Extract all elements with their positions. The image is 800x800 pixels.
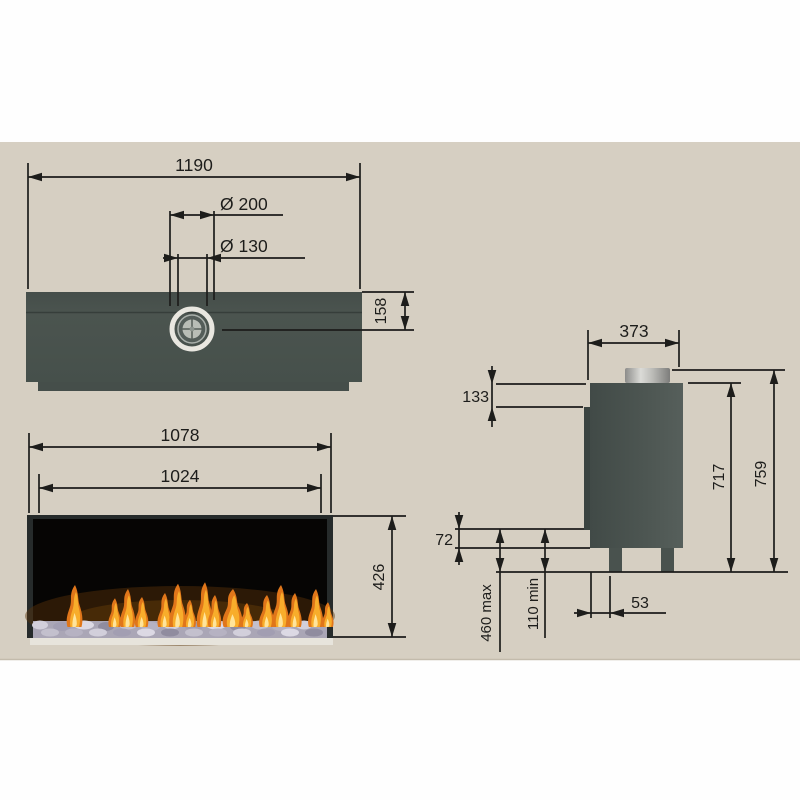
pebble xyxy=(161,629,179,637)
top-view-pedestal xyxy=(38,382,349,391)
dim-label-flue-outer: Ø 200 xyxy=(220,194,268,214)
pebble xyxy=(257,629,275,637)
dim-label-clearance-min: 110 min xyxy=(525,578,542,630)
pebble xyxy=(89,629,107,637)
dim-label-front-opening-height: 426 xyxy=(371,564,388,591)
side-view-flue-collar xyxy=(625,368,670,383)
dim-label-top-width: 1190 xyxy=(175,155,213,175)
pebble xyxy=(305,629,323,637)
pebble xyxy=(233,629,251,637)
side-view-front-glass xyxy=(584,407,590,530)
dim-label-front-overall-width: 1078 xyxy=(161,425,200,445)
diagram-canvas: 1190 Ø 200 Ø 130 158 1078 xyxy=(0,0,800,800)
side-view-body xyxy=(590,383,683,548)
pebble xyxy=(32,621,48,630)
flue-collar-top xyxy=(172,309,212,349)
flue-center-dot xyxy=(190,327,195,332)
pebble xyxy=(137,629,155,637)
fireplace-dimension-drawing: 1190 Ø 200 Ø 130 158 1078 xyxy=(0,0,800,800)
dim-label-leg-inset: 53 xyxy=(631,595,649,612)
dim-label-flue-offset: 158 xyxy=(373,298,390,325)
dim-label-side-depth: 373 xyxy=(619,321,648,341)
dim-label-body-height: 717 xyxy=(711,464,728,491)
dim-label-overall-height: 759 xyxy=(753,461,770,488)
firebox xyxy=(25,515,335,646)
dim-label-front-opening-width: 1024 xyxy=(161,466,200,486)
pebble xyxy=(209,629,227,637)
pebble xyxy=(185,629,203,637)
pebble xyxy=(65,629,83,637)
pebble xyxy=(113,629,131,637)
firebox-pedestal xyxy=(30,638,333,645)
pebble xyxy=(281,629,299,637)
dim-label-top-section: 133 xyxy=(462,389,489,406)
dim-label-clearance-max: 460 max xyxy=(478,584,495,642)
side-view-front-leg xyxy=(609,548,622,572)
side-view-rear-leg xyxy=(661,548,674,572)
pebble xyxy=(41,629,59,637)
dim-label-bottom-panel: 72 xyxy=(435,532,453,549)
dim-label-flue-inner: Ø 130 xyxy=(220,236,268,256)
